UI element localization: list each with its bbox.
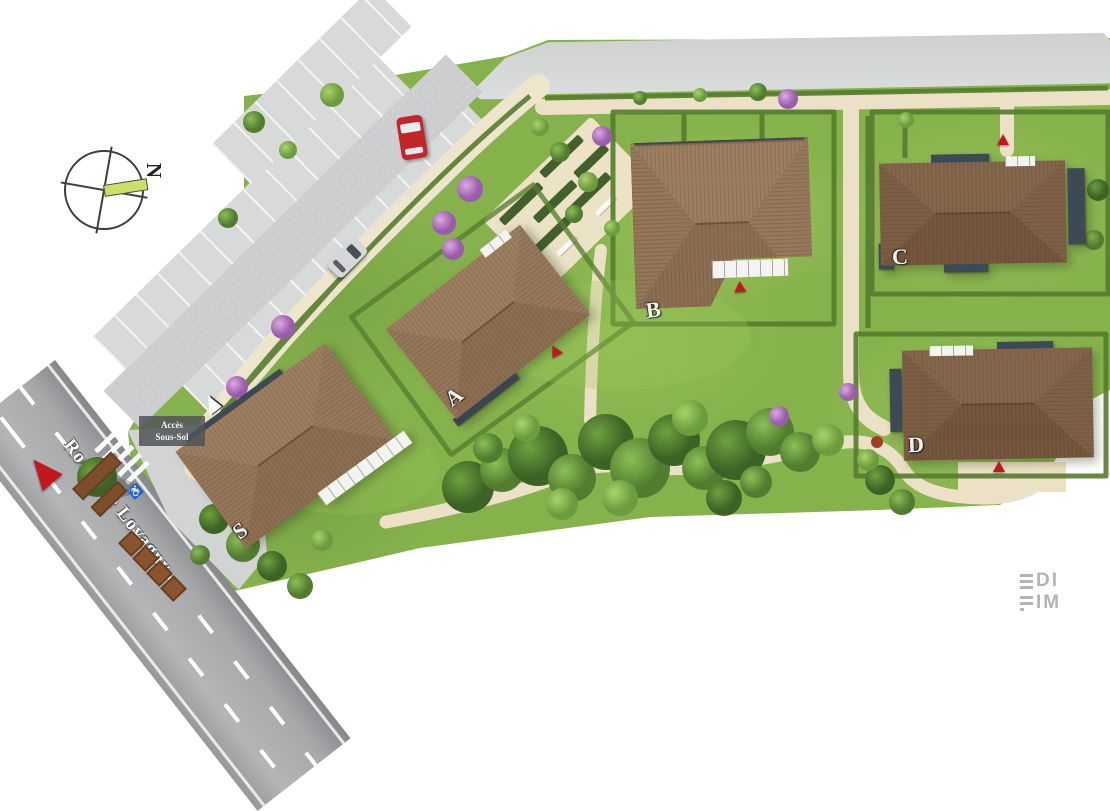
compass-north-label: N (141, 163, 166, 178)
building-d-roof[interactable] (902, 347, 1094, 460)
entrance-marker-c[interactable] (997, 134, 1009, 145)
terraces (1005, 156, 1035, 167)
compass (64, 150, 144, 230)
entrance-marker-d[interactable] (993, 461, 1005, 472)
edifim-logo: DI IM (1020, 570, 1061, 614)
logo-text: DI (1036, 570, 1059, 592)
logo-letter-e-icon (1020, 574, 1033, 589)
terraces (929, 345, 973, 356)
entrance-marker-b[interactable] (734, 281, 747, 293)
canopy (889, 368, 902, 432)
basement-access-sign: Accès Sous-Sol (139, 416, 205, 446)
logo-line-1: DI (1020, 570, 1061, 592)
logo-line-2: IM (1020, 592, 1061, 614)
building-b-terraces (712, 259, 789, 279)
building-d-label[interactable]: D (908, 432, 925, 459)
logo-letter-f-icon (1020, 596, 1033, 611)
logo-text: IM (1036, 592, 1061, 614)
building-b-label[interactable]: B (644, 296, 662, 324)
building-c-label[interactable]: C (891, 244, 908, 271)
canopy (1067, 168, 1085, 244)
